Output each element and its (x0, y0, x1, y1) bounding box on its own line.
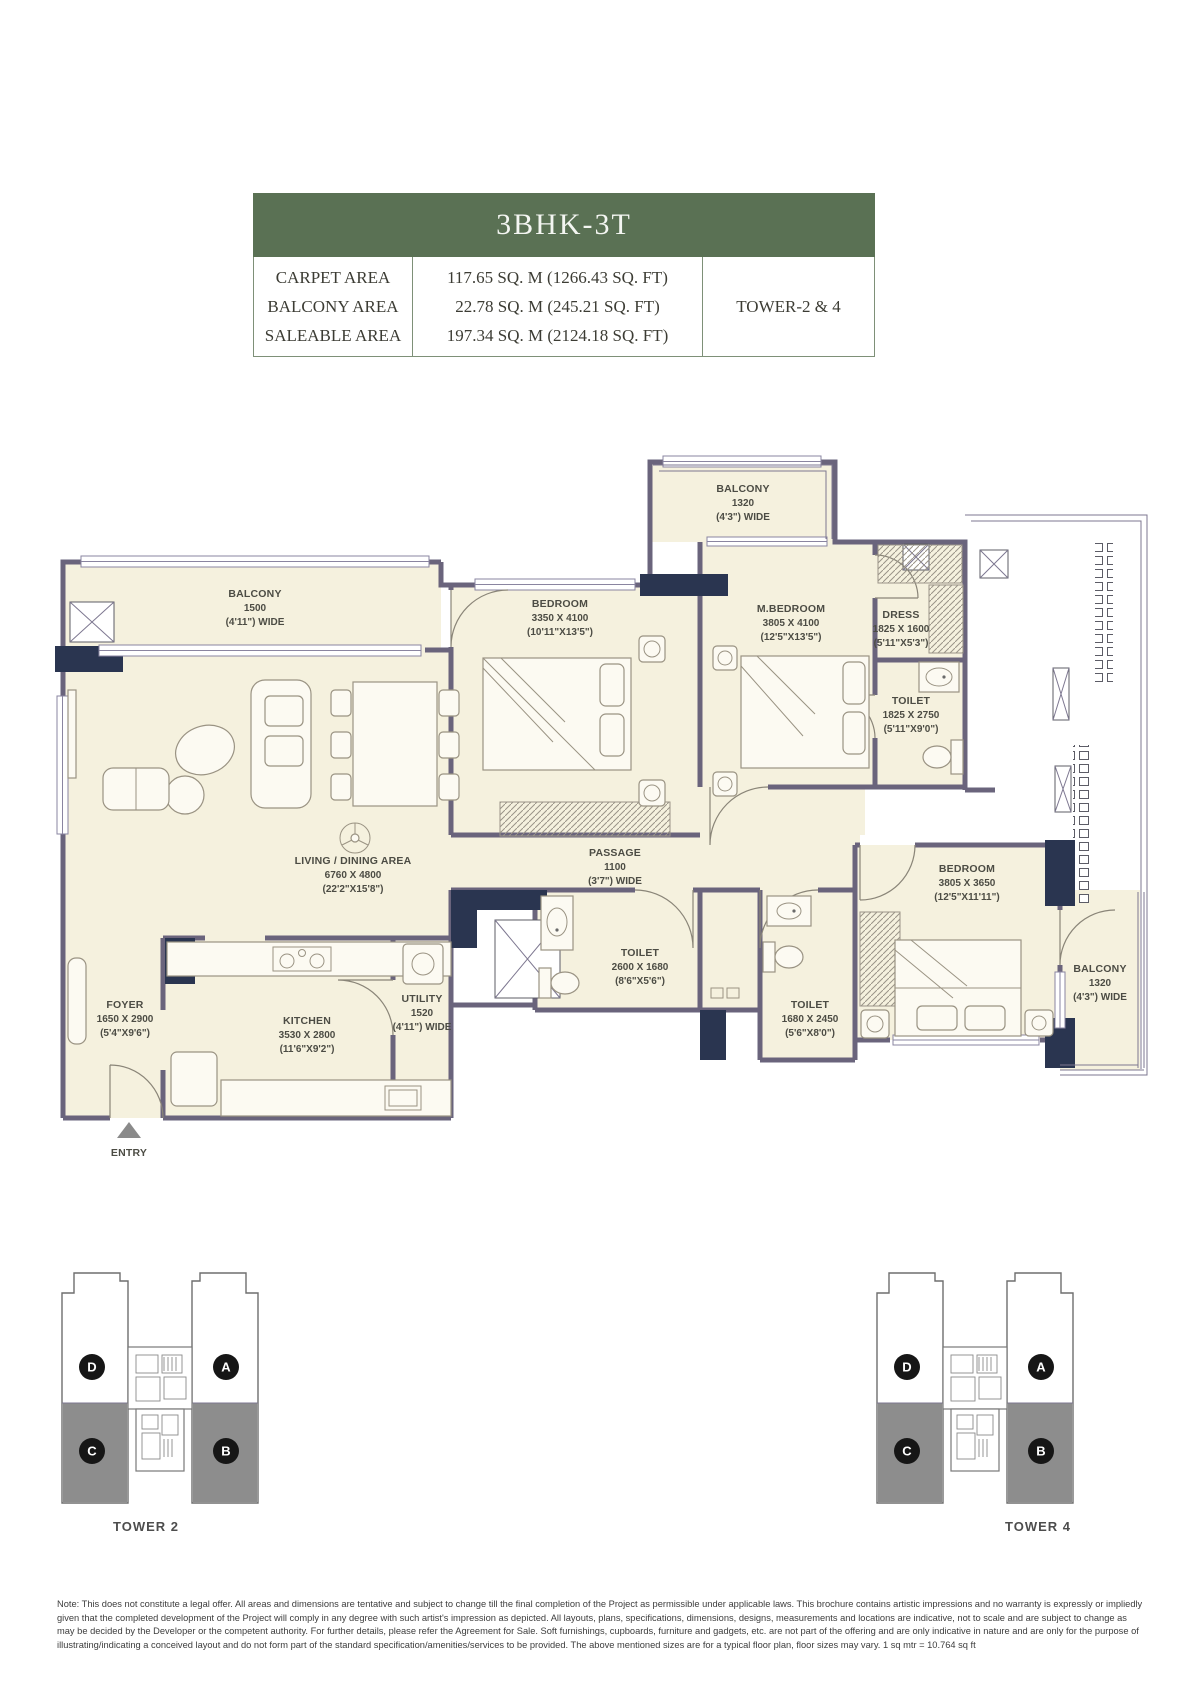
unit-badge-c: C (894, 1438, 920, 1464)
svg-text:C: C (902, 1444, 912, 1459)
entry-label: ENTRY (111, 1147, 147, 1159)
unit-badge-a: A (213, 1354, 239, 1380)
svg-text:TOILET: TOILET (892, 695, 931, 707)
svg-text:KITCHEN: KITCHEN (283, 1015, 331, 1027)
spec-row-label: CARPET AREA (254, 263, 412, 292)
svg-text:FOYER: FOYER (106, 999, 143, 1011)
svg-text:(12'5"X11'11"): (12'5"X11'11") (934, 892, 999, 903)
svg-text:D: D (87, 1360, 96, 1375)
svg-text:1320: 1320 (1089, 978, 1112, 989)
unit-badge-c: C (79, 1438, 105, 1464)
room-label-kitchen: KITCHEN 3530 X 2800 (11'6"X9'2") (279, 1015, 336, 1055)
svg-text:A: A (221, 1360, 231, 1375)
svg-text:PASSAGE: PASSAGE (589, 847, 641, 859)
svg-text:(5'11"X5'3"): (5'11"X5'3") (874, 638, 929, 649)
svg-text:TOILET: TOILET (621, 947, 660, 959)
unit-badge-d: D (79, 1354, 105, 1380)
svg-text:1825 X 2750: 1825 X 2750 (883, 710, 940, 721)
disclaimer-note: Note: This does not constitute a legal o… (57, 1598, 1145, 1652)
svg-text:(5'6"X8'0"): (5'6"X8'0") (785, 1028, 835, 1039)
svg-text:BALCONY: BALCONY (1073, 963, 1126, 975)
svg-text:BEDROOM: BEDROOM (939, 863, 995, 875)
svg-text:2600 X 1680: 2600 X 1680 (612, 962, 669, 973)
svg-text:(4'3") WIDE: (4'3") WIDE (716, 512, 770, 523)
svg-text:1520: 1520 (411, 1008, 434, 1019)
spec-values-column: 117.65 SQ. M (1266.43 SQ. FT) 22.78 SQ. … (412, 257, 702, 356)
tower2-caption: TOWER 2 (113, 1519, 179, 1534)
svg-text:(4'11") WIDE: (4'11") WIDE (226, 617, 285, 628)
svg-text:(4'3") WIDE: (4'3") WIDE (1073, 992, 1127, 1003)
svg-text:DRESS: DRESS (882, 609, 919, 621)
svg-text:A: A (1036, 1360, 1046, 1375)
tower4-keyplan: D A C B TOWER 4 (855, 1235, 1095, 1545)
svg-text:B: B (221, 1444, 230, 1459)
shaft-box (1053, 668, 1069, 720)
svg-text:(4'11") WIDE: (4'11") WIDE (393, 1022, 452, 1033)
spec-row-value: 22.78 SQ. M (245.21 SQ. FT) (413, 292, 702, 321)
svg-text:LIVING / DINING AREA: LIVING / DINING AREA (295, 855, 412, 867)
svg-text:1825 X 1600: 1825 X 1600 (873, 624, 930, 635)
shaft-box (70, 602, 114, 642)
svg-text:(3'7") WIDE: (3'7") WIDE (588, 876, 642, 887)
ac-ledge-grille (1095, 542, 1113, 682)
tv-console (68, 690, 76, 778)
svg-text:UTILITY: UTILITY (401, 993, 442, 1005)
svg-text:TOILET: TOILET (791, 999, 830, 1011)
foyer-cabinet (68, 958, 86, 1044)
unit-badge-b: B (213, 1438, 239, 1464)
svg-text:1680 X 2450: 1680 X 2450 (782, 1014, 839, 1025)
svg-text:B: B (1036, 1444, 1045, 1459)
spec-table: 3BHK-3T CARPET AREA BALCONY AREA SALEABL… (253, 193, 875, 357)
shaft-box (1055, 766, 1071, 812)
svg-text:(22'2"X15'8"): (22'2"X15'8") (323, 884, 384, 895)
svg-text:1650 X 2900: 1650 X 2900 (97, 1014, 154, 1025)
svg-text:1500: 1500 (244, 603, 267, 614)
plan-title: 3BHK-3T (253, 193, 875, 257)
svg-text:(10'11"X13'5"): (10'11"X13'5") (527, 627, 593, 638)
spec-row-label: BALCONY AREA (254, 292, 412, 321)
svg-text:1320: 1320 (732, 498, 755, 509)
svg-text:6760 X 4800: 6760 X 4800 (325, 870, 382, 881)
spec-row-label: SALEABLE AREA (254, 321, 412, 350)
svg-text:M.BEDROOM: M.BEDROOM (757, 603, 825, 615)
unit-badge-b: B (1028, 1438, 1054, 1464)
floor-plan: BALCONY 1500 (4'11") WIDE LIVING / DININ… (55, 450, 1160, 1180)
svg-text:BALCONY: BALCONY (716, 483, 769, 495)
spec-labels-column: CARPET AREA BALCONY AREA SALEABLE AREA (254, 257, 412, 356)
svg-text:(12'5"X13'5"): (12'5"X13'5") (761, 632, 822, 643)
svg-text:BEDROOM: BEDROOM (532, 598, 588, 610)
room-label-bedroom-br: BEDROOM 3805 X 3650 (12'5"X11'11") (934, 863, 999, 903)
entry-marker: ENTRY (111, 1122, 147, 1159)
washer (403, 944, 443, 984)
spec-row-value: 197.34 SQ. M (2124.18 SQ. FT) (413, 321, 702, 350)
svg-text:(11'6"X9'2"): (11'6"X9'2") (280, 1044, 335, 1055)
spec-table-body: CARPET AREA BALCONY AREA SALEABLE AREA 1… (253, 257, 875, 357)
svg-text:3530 X 2800: 3530 X 2800 (279, 1030, 336, 1041)
svg-text:(5'11"X9'0"): (5'11"X9'0") (884, 724, 939, 735)
entry-arrow-icon (117, 1122, 141, 1138)
svg-text:(5'4"X9'6"): (5'4"X9'6") (100, 1028, 150, 1039)
brochure-page: 3BHK-3T CARPET AREA BALCONY AREA SALEABL… (0, 0, 1200, 1695)
svg-text:BALCONY: BALCONY (228, 588, 281, 600)
ac-ledge-grille (1073, 745, 1091, 905)
svg-text:(8'6"X5'6"): (8'6"X5'6") (615, 976, 665, 987)
svg-text:D: D (902, 1360, 911, 1375)
tower2-keyplan: D A C B TOWER 2 (40, 1235, 280, 1545)
svg-text:1100: 1100 (604, 862, 626, 873)
room-label-bedroom-top: BEDROOM 3350 X 4100 (10'11"X13'5") (527, 598, 593, 638)
fridge (171, 1052, 217, 1106)
unit-badge-d: D (894, 1354, 920, 1380)
tower4-caption: TOWER 4 (1005, 1519, 1071, 1534)
toilet-common-fixtures (539, 896, 579, 998)
svg-text:3350 X 4100: 3350 X 4100 (532, 613, 589, 624)
unit-badge-a: A (1028, 1354, 1054, 1380)
tower-availability: TOWER-2 & 4 (702, 257, 874, 356)
svg-text:C: C (87, 1444, 97, 1459)
shaft-box (980, 550, 1008, 578)
room-label-mbedroom: M.BEDROOM 3805 X 4100 (12'5"X13'5") (757, 603, 825, 643)
spec-row-value: 117.65 SQ. M (1266.43 SQ. FT) (413, 263, 702, 292)
svg-text:3805 X 4100: 3805 X 4100 (763, 618, 820, 629)
svg-text:3805 X 3650: 3805 X 3650 (939, 878, 996, 889)
